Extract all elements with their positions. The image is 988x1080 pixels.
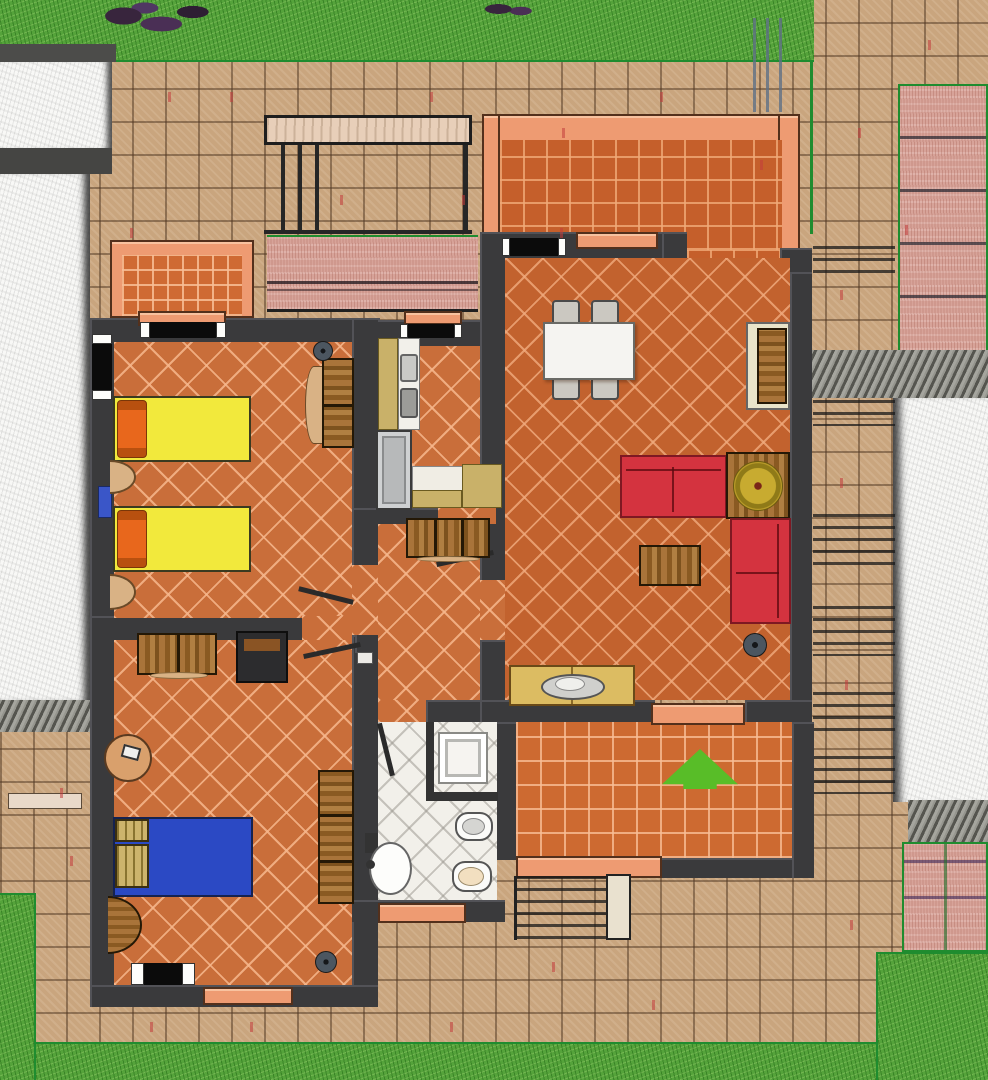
neighbour-left-roofband [0, 148, 112, 174]
pink-terrace-corner [902, 842, 988, 952]
survey-tick [230, 92, 233, 102]
terrace-wall-left [482, 114, 500, 250]
kitchen-tall-cabinet [378, 338, 398, 430]
window-jamb [92, 390, 112, 400]
survey-tick [928, 40, 931, 50]
survey-tick [840, 290, 843, 300]
survey-tick [150, 1022, 153, 1032]
survey-tick [560, 228, 563, 238]
survey-tick [652, 1000, 655, 1010]
survey-tick [250, 1022, 253, 1032]
neighbour-right-footing [908, 800, 988, 842]
window-jamb [131, 963, 144, 985]
armchair-cushion [244, 639, 280, 651]
cushion-line [777, 524, 779, 618]
survey-tick [840, 478, 843, 488]
divider [320, 860, 352, 863]
window-master-bottom [144, 963, 182, 985]
dresser-door-arc [305, 366, 323, 444]
washbasin [369, 842, 412, 895]
window-jamb [400, 324, 408, 338]
outdoor-stairs-right [813, 606, 895, 656]
window-jamb [454, 324, 462, 338]
lawn-bottom [0, 1042, 988, 1080]
wall-porch-left [494, 722, 516, 860]
dark-armchair [236, 631, 288, 683]
bidet-bowl [462, 818, 485, 835]
window-twin-left [92, 344, 112, 390]
neighbour-building-left-upper [0, 62, 112, 148]
survey-tick [562, 128, 565, 138]
sofa-vertical [730, 518, 791, 624]
hall-pier-cap [357, 652, 373, 664]
survey-tick [168, 92, 171, 102]
window-jamb [92, 334, 112, 344]
pink-planter-strip [267, 235, 478, 312]
outdoor-stairs-right [813, 756, 895, 794]
shower-wall [426, 722, 434, 798]
survey-tick [430, 92, 433, 102]
dining-table [543, 322, 635, 380]
windowsill [576, 232, 658, 249]
pergola-post [463, 145, 468, 233]
step-line [900, 136, 986, 139]
neighbour-left-roofband [0, 44, 116, 62]
survey-tick [760, 160, 763, 170]
dresser [322, 358, 354, 448]
survey-tick [858, 128, 861, 138]
wall-porch-right [792, 722, 814, 878]
doorway-floor [352, 565, 378, 635]
window-living-top [510, 238, 558, 256]
floor-plan-canvas [0, 0, 988, 1080]
window-jamb [216, 322, 226, 338]
pillow [117, 510, 147, 568]
pergola-post [315, 145, 319, 233]
outdoor-stairs-right [813, 246, 895, 276]
wall-living-bottom [745, 700, 812, 722]
kitchen-sink-unit [400, 354, 418, 382]
faucet [366, 860, 375, 869]
lawn-right [876, 952, 988, 1080]
outdoor-stairs-right [813, 692, 895, 738]
doorway-floor [378, 700, 426, 722]
fence-line [779, 18, 782, 112]
gold-disc [733, 461, 783, 511]
windowsill [203, 987, 293, 1005]
survey-tick [905, 225, 908, 235]
neighbour-building-left [0, 174, 90, 700]
survey-tick [130, 228, 133, 238]
master-bedroom-floor [114, 640, 352, 985]
pergola-edge [264, 230, 472, 234]
pen-line [810, 62, 813, 234]
shower-wall [426, 792, 498, 801]
windowsill [378, 903, 466, 923]
divider [461, 520, 464, 556]
wall-living-right [790, 272, 812, 722]
desk-cabinet [137, 633, 217, 675]
divider [177, 635, 180, 673]
kitchen-stove [400, 388, 418, 418]
planter-line [267, 281, 478, 284]
kitchen-counter [412, 490, 462, 508]
terrace-wall-top [482, 114, 800, 142]
survey-tick [462, 195, 465, 205]
grid-line [944, 844, 947, 950]
pergola-beam [264, 115, 472, 145]
porch-sill [516, 856, 662, 878]
planter-line [267, 289, 478, 291]
outdoor-stairs-right [813, 514, 895, 568]
sideboard-shadow [416, 556, 480, 562]
step-line [900, 295, 986, 298]
window-jamb [558, 238, 566, 256]
cushion-line [672, 467, 674, 512]
wall-mid-vertical [352, 318, 378, 565]
hall-sideboard [406, 518, 490, 558]
survey-tick [845, 680, 848, 690]
coffee-table [639, 545, 701, 586]
window-jamb [502, 238, 510, 256]
pink-terrace-right [898, 84, 988, 352]
fence-line [766, 18, 769, 112]
window-jamb [140, 322, 150, 338]
wall-top-bedroom [90, 318, 380, 342]
lawn-left [0, 893, 36, 1080]
survey-tick [60, 788, 63, 798]
shrub [92, 0, 218, 40]
kitchen-counter [412, 466, 464, 492]
divider [320, 814, 352, 817]
divider [324, 404, 352, 407]
toilet-seat [458, 867, 484, 886]
neighbour-right-footing [812, 350, 988, 398]
survey-tick [450, 1022, 453, 1032]
newel-post [606, 874, 631, 940]
wicker-pillow [115, 819, 149, 842]
kitchen-counter [462, 464, 502, 508]
front-door [651, 703, 745, 725]
platter-dome [555, 677, 585, 691]
pergola-post [298, 145, 302, 233]
cushion-line [626, 469, 721, 471]
outdoor-stairs-right [813, 400, 895, 426]
porch-floor [516, 722, 792, 858]
desk-shadow [150, 672, 208, 679]
fence-line [753, 18, 756, 112]
shrub-small [476, 0, 540, 20]
dining-sideboard-front [757, 328, 787, 404]
survey-tick [552, 962, 555, 972]
pergola-post [281, 145, 285, 233]
wicker-pillow [115, 844, 149, 888]
survey-tick [660, 92, 663, 102]
step-line [900, 242, 986, 245]
wardrobe [318, 770, 354, 904]
wall-mid-vertical [352, 635, 378, 1007]
window-kitchen-top [408, 324, 454, 338]
survey-tick [70, 856, 73, 866]
sofa-horizontal [620, 455, 727, 518]
cushion-line [736, 572, 779, 574]
shower [438, 732, 488, 784]
windowsill [404, 311, 462, 325]
floor-lamp [743, 633, 767, 657]
survey-tick [850, 920, 853, 930]
doorway-floor [302, 616, 352, 640]
bedroom-lamp [315, 951, 337, 973]
entry-steps [514, 876, 608, 940]
garden-step [8, 793, 82, 809]
neighbour-building-right [893, 398, 988, 802]
doorway-floor [480, 580, 505, 640]
left-terrace-tiles [122, 255, 242, 316]
wall-porch-bottom [660, 858, 814, 878]
refrigerator [376, 430, 412, 510]
window-twin-top [150, 322, 216, 338]
ceiling-lamp-1 [313, 341, 333, 361]
window-jamb [182, 963, 195, 985]
step-line [900, 189, 986, 192]
divider [434, 520, 437, 556]
survey-tick [340, 195, 343, 205]
pillow [117, 400, 147, 458]
neighbour-left-footing [0, 700, 90, 732]
